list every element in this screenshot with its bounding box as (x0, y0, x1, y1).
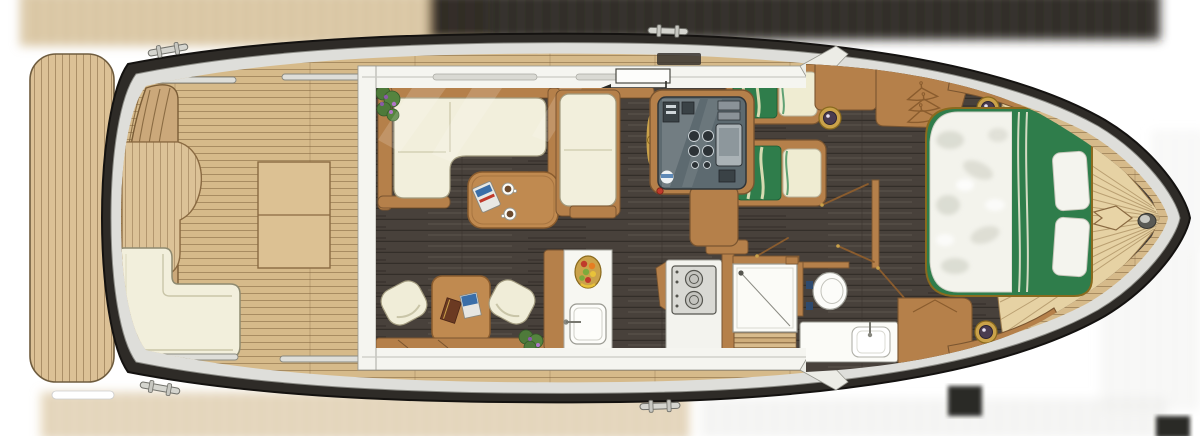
fruit-bowl-icon (575, 256, 601, 288)
cooktop (666, 260, 722, 352)
helm-bench (556, 90, 620, 218)
vanity-washbasin (800, 322, 898, 362)
knob-icon (657, 188, 663, 194)
galley-sink (563, 304, 606, 344)
bed-pillow (1052, 217, 1090, 277)
shadow-block (948, 386, 982, 416)
chart-table (690, 186, 738, 246)
island-double-bed (926, 108, 1092, 296)
roof-hatch (657, 53, 701, 65)
bow-roller-icon (1138, 214, 1156, 229)
bulkhead (722, 240, 734, 352)
berth-pillow (783, 149, 821, 197)
drain-icon (738, 270, 743, 275)
shadow-block (1156, 416, 1190, 436)
shower-tray (733, 264, 797, 332)
corridor-wall (872, 180, 879, 268)
bed-pillow (1052, 151, 1090, 211)
salon-window (433, 74, 537, 80)
dinette-table (432, 276, 490, 342)
engine-hatch (258, 162, 330, 268)
yacht-deck-plan (0, 0, 1200, 436)
